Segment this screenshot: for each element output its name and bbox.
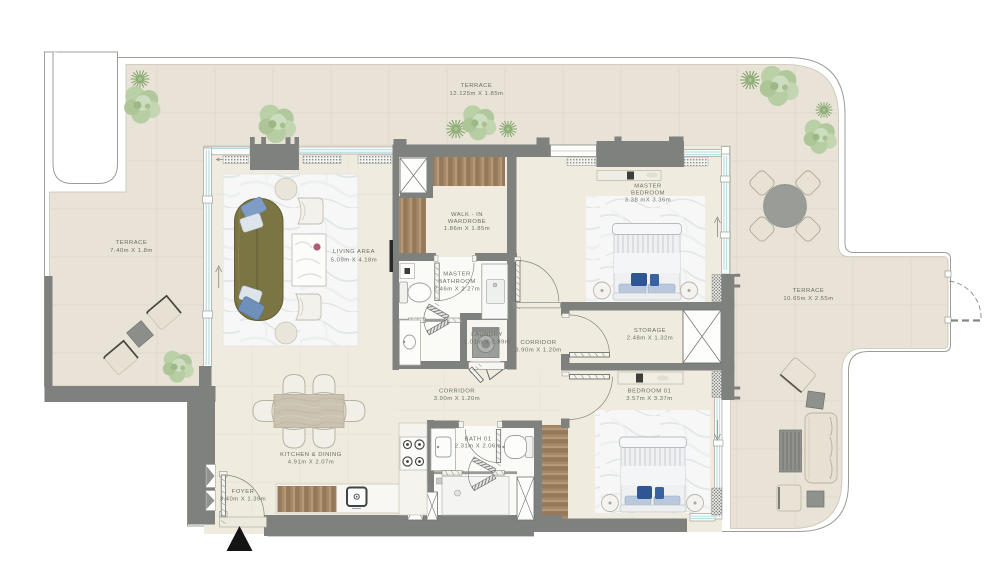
svg-text:7.40m X 1.8m: 7.40m X 1.8m [110,248,153,254]
svg-text:5.09m X 4.18m: 5.09m X 4.18m [331,258,377,264]
svg-text:FOYER: FOYER [232,489,255,495]
svg-text:BEDROOM 01: BEDROOM 01 [628,389,672,395]
svg-text:WARDROBE: WARDROBE [448,219,486,225]
svg-text:KITCHEN & DINING: KITCHEN & DINING [280,452,342,458]
svg-text:MASTER: MASTER [634,184,662,190]
svg-text:2.31m X 2.06m: 2.31m X 2.06m [455,444,501,450]
svg-text:3.38 mX 3.36m: 3.38 mX 3.36m [625,198,671,204]
svg-text:BATHROOM: BATHROOM [438,279,476,285]
svg-text:CORRIDOR: CORRIDOR [439,389,475,395]
svg-text:3.57m X 3.37m: 3.57m X 3.37m [626,396,672,402]
svg-text:CORRIDOR: CORRIDOR [520,340,556,346]
svg-text:STORAGE: STORAGE [634,328,666,334]
svg-text:LIVING AREA: LIVING AREA [333,249,375,255]
svg-text:3.40m X 1.39m: 3.40m X 1.39m [220,497,266,503]
svg-text:1.86m X 1.85m: 1.86m X 1.85m [444,226,490,232]
svg-text:12.125m X 1.85m: 12.125m X 1.85m [450,91,504,97]
svg-text:BEDROOM: BEDROOM [631,191,665,197]
svg-text:LAUNDRY: LAUNDRY [471,332,503,338]
svg-text:TERRACE: TERRACE [116,240,148,246]
svg-text:TERRACE: TERRACE [461,83,493,89]
svg-text:BATH 01: BATH 01 [465,437,492,443]
svg-text:10.65m X 2.55m: 10.65m X 2.55m [783,296,833,302]
svg-text:3.90m X 1.20m: 3.90m X 1.20m [434,396,480,402]
svg-text:2.48m X 1.32m: 2.48m X 1.32m [627,336,673,342]
svg-text:3.90m X 1.20m: 3.90m X 1.20m [515,348,561,354]
svg-text:MASTER: MASTER [443,272,471,278]
svg-text:2.46m X 2.27m: 2.46m X 2.27m [434,287,480,293]
svg-text:4.91m X 2.07m: 4.91m X 2.07m [288,460,334,466]
svg-text:WALK - IN: WALK - IN [451,212,483,218]
svg-text:1.01m X 0.89m: 1.01m X 0.89m [464,340,510,346]
svg-text:TERRACE: TERRACE [793,288,825,294]
